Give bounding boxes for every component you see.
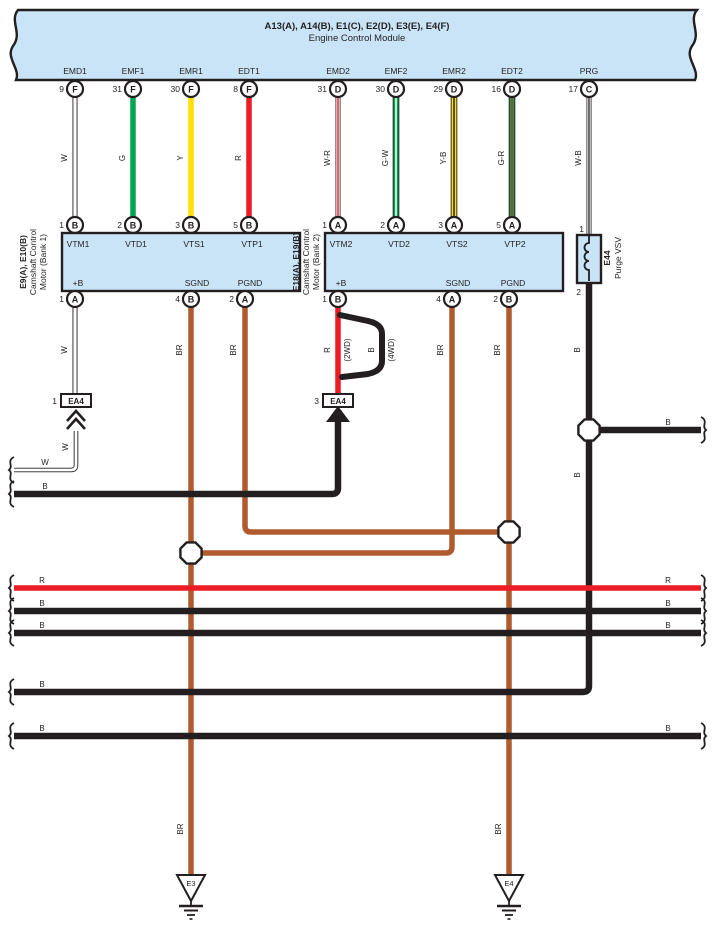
pin-connector-letter: B — [335, 295, 342, 305]
ecm-pin-emd1: 9 F — [59, 81, 83, 97]
connector-label: EA4 — [68, 397, 84, 406]
bank2-pgnd: PGND — [501, 278, 526, 288]
bank1-top-pin-3: 3 B — [175, 217, 199, 233]
label-4wd: (4WD) — [387, 338, 396, 361]
bank1-body — [62, 233, 300, 291]
bank1-top-pin-5: 5 B — [233, 217, 257, 233]
bank2-top-pin-2: 2 A — [380, 217, 404, 233]
wire-sgnd2-br — [200, 306, 452, 553]
ecm-pin-emf2: 30 D — [376, 81, 404, 97]
wire-label-y: Y — [176, 155, 185, 161]
bank1-bottom-pin-2: 2 A — [229, 291, 253, 307]
label-b-bus3-left: B — [39, 680, 44, 689]
bank1-bottom-pin-1: 1 A — [59, 291, 83, 307]
connector-number: 3 — [314, 396, 319, 406]
wire-ea4-3-continuation-b — [14, 414, 338, 494]
label-br-pgnd1: BR — [229, 344, 238, 355]
pin-number: 30 — [171, 84, 181, 94]
bank1-vtm1: VTM1 — [67, 239, 90, 249]
wire-label-gw: G-W — [381, 149, 390, 166]
pin-connector-letter: A — [451, 221, 458, 231]
bank1-vtp1: VTP1 — [241, 239, 263, 249]
pin-connector-letter: A — [393, 221, 400, 231]
bank2-desc1: Camshaft Control — [301, 229, 311, 295]
upper-wire-labels: W G Y R W-R G-W Y-B G-R W-B — [60, 149, 583, 166]
ecm-signal-prg: PRG — [580, 66, 598, 76]
bank1-vtd1: VTD1 — [125, 239, 147, 249]
bank2-top-pin-1: 1 A — [322, 217, 346, 233]
label-br-e3: BR — [176, 823, 185, 834]
label-b-bus2-right: B — [665, 621, 670, 630]
ecm-pin-emr2: 29 D — [434, 81, 462, 97]
wire-label-gr: G-R — [497, 150, 506, 165]
ground-e4: E4 — [495, 875, 523, 919]
ground-label: E4 — [504, 879, 513, 888]
brace-right-b5 — [701, 723, 706, 749]
label-w-left-exit: W — [41, 458, 49, 467]
label-b-bus2-left: B — [39, 621, 44, 630]
ecm-signal-emf2: EMF2 — [385, 66, 408, 76]
brace-right-r — [701, 575, 706, 601]
bank2-bottom-pin-4: 4 A — [436, 291, 460, 307]
bank1-code: E9(A), E10(B) — [18, 235, 28, 289]
label-r-bus-left: R — [39, 576, 45, 585]
vsv-pin-bottom: 2 — [576, 287, 581, 297]
splice-sgnd — [180, 542, 201, 563]
bank2-vtp2: VTP2 — [504, 239, 526, 249]
bank2-plusb: +B — [336, 278, 347, 288]
lower-wiring — [14, 283, 701, 876]
wire-label-r: R — [234, 155, 243, 161]
ecm: A13(A), A14(B), E1(C), E2(D), E3(E), E4(… — [11, 10, 697, 97]
ecm-signal-emd2: EMD2 — [326, 66, 350, 76]
pin-number: 9 — [59, 84, 64, 94]
ecm-pin-emf1: 31 F — [113, 81, 141, 97]
pin-number: 1 — [322, 294, 327, 304]
pin-connector-letter: A — [335, 221, 342, 231]
pin-connector-letter: F — [130, 85, 136, 95]
pin-connector-letter: D — [509, 85, 516, 95]
brace-left-b4 — [9, 679, 14, 705]
pin-number: 31 — [318, 84, 328, 94]
bank1-top-pin-2: 2 B — [117, 217, 141, 233]
label-b-left-exit: B — [42, 482, 47, 491]
pin-number: 1 — [59, 220, 64, 230]
label-b-bus4-left: B — [39, 724, 44, 733]
pin-number: 17 — [569, 84, 579, 94]
pin-number: 30 — [376, 84, 386, 94]
pin-number: 31 — [113, 84, 123, 94]
pin-connector-letter: F — [188, 85, 194, 95]
bank1-desc1: Camshaft Control — [28, 229, 38, 295]
pin-number: 5 — [233, 220, 238, 230]
ecm-signal-emr1: EMR1 — [179, 66, 203, 76]
bank2-motor: 1 A 2 A 3 A 5 A VTM2 VTD2 VTS2 VTP2 +B S… — [291, 217, 563, 307]
connector-ea4-3: 3 EA4 — [314, 394, 353, 422]
bank2-top-pin-5: 5 A — [496, 217, 520, 233]
brace-left-w — [9, 457, 14, 483]
label-br-sgnd1: BR — [175, 344, 184, 355]
bank2-desc2: Motor (Bank 2) — [311, 234, 321, 290]
bank2-vtm2: VTM2 — [330, 239, 353, 249]
chevron-arrow-icon — [67, 419, 85, 429]
pin-connector-letter: B — [246, 221, 253, 231]
pin-connector-letter: D — [335, 85, 342, 95]
bank2-code: E18(A), E19(B) — [291, 233, 301, 292]
label-w-ea4-lower: W — [61, 443, 70, 451]
label-br-e4: BR — [494, 823, 503, 834]
ground-label: E3 — [186, 879, 195, 888]
vsv-pin-top: 1 — [579, 224, 584, 234]
pin-number: 8 — [233, 84, 238, 94]
label-r-bus-right: R — [665, 576, 671, 585]
bank2-top-pin-3: 3 A — [438, 217, 462, 233]
pin-connector-letter: D — [451, 85, 458, 95]
pin-connector-letter: F — [246, 85, 252, 95]
connector-number: 1 — [52, 396, 57, 406]
bank2-sgnd: SGND — [446, 278, 471, 288]
pin-number: 2 — [380, 220, 385, 230]
pin-number: 3 — [175, 220, 180, 230]
splice-black — [578, 419, 599, 440]
ecm-pin-emd2: 31 D — [318, 81, 346, 97]
bank2-vts2: VTS2 — [446, 239, 468, 249]
bank1-sgnd: SGND — [185, 278, 210, 288]
brace-left-b1 — [9, 481, 14, 507]
label-br-pgnd2: BR — [493, 344, 502, 355]
label-b-4wd-wire: B — [367, 347, 376, 352]
bank1-pgnd: PGND — [238, 278, 263, 288]
continuation-braces — [9, 417, 706, 749]
brace-left-b5 — [9, 723, 14, 749]
label-b-bus4-right: B — [665, 724, 670, 733]
pin-number: 3 — [438, 220, 443, 230]
pin-connector-letter: F — [72, 85, 78, 95]
bank1-bottom-pin-4: 4 B — [175, 291, 199, 307]
label-b-vsv-upper: B — [573, 347, 582, 352]
ecm-subtitle: Engine Control Module — [309, 33, 406, 44]
bank1-top-pin-1: 1 B — [59, 217, 83, 233]
pin-connector-letter: B — [188, 295, 195, 305]
ecm-pin-edt1: 8 F — [233, 81, 257, 97]
wire-label-wr: W-R — [323, 150, 332, 166]
pin-connector-letter: D — [393, 85, 400, 95]
ecm-signal-emd1: EMD1 — [63, 66, 87, 76]
pin-connector-letter: B — [130, 221, 137, 231]
bank1-vts1: VTS1 — [183, 239, 205, 249]
pin-connector-letter: A — [242, 295, 249, 305]
label-r-plusb2: R — [323, 347, 332, 353]
wiring-diagram-page: W G Y R W-R G-W Y-B G-R W-B — [0, 0, 715, 931]
pin-number: 29 — [434, 84, 444, 94]
wiring-diagram: W G Y R W-R G-W Y-B G-R W-B — [0, 0, 715, 931]
label-w-plusb1: W — [60, 346, 69, 354]
wire-label-yb: Y-B — [439, 152, 448, 165]
pin-number: 1 — [59, 294, 64, 304]
ecm-pin-emr1: 30 F — [171, 81, 199, 97]
pin-number: 5 — [496, 220, 501, 230]
brace-right-branch — [701, 417, 706, 443]
bank2-vtd2: VTD2 — [388, 239, 410, 249]
bus-wires — [14, 588, 701, 736]
pin-connector-letter: B — [506, 295, 513, 305]
pin-number: 2 — [229, 294, 234, 304]
wire-pgnd1-br — [245, 306, 500, 532]
ecm-pin-prg: 17 C — [569, 81, 597, 97]
label-b-bus1-left: B — [39, 599, 44, 608]
label-b-bus1-right: B — [665, 599, 670, 608]
bank1-plusb: +B — [73, 278, 84, 288]
ecm-signal-edt2: EDT2 — [501, 66, 523, 76]
label-2wd: (2WD) — [343, 338, 352, 361]
pin-number: 1 — [322, 220, 327, 230]
bank1-desc2: Motor (Bank 1) — [38, 234, 48, 290]
ecm-output-wires — [75, 97, 589, 235]
pin-connector-letter: A — [449, 295, 456, 305]
pin-connector-letter: A — [72, 295, 79, 305]
wire-label-wb: W-B — [574, 150, 583, 165]
bank2-body — [325, 233, 563, 291]
label-b-vsv-lower: B — [573, 472, 582, 477]
brace-left-r — [9, 575, 14, 601]
connector-label: EA4 — [330, 397, 346, 406]
bank2-bottom-pin-1: 1 B — [322, 291, 346, 307]
pin-number: 2 — [493, 294, 498, 304]
purge-vsv: 1 2 E44 Purge VSV — [576, 224, 623, 297]
pin-number: 4 — [175, 294, 180, 304]
ecm-signal-emr2: EMR2 — [442, 66, 466, 76]
pin-connector-letter: B — [72, 221, 79, 231]
ground-e3: E3 — [177, 875, 205, 919]
pin-connector-letter: B — [188, 221, 195, 231]
vsv-code: E44 — [602, 250, 612, 265]
bank2-bottom-pin-2: 2 B — [493, 291, 517, 307]
pin-connector-letter: C — [586, 85, 593, 95]
wire-label-g: G — [118, 155, 127, 161]
ecm-signal-edt1: EDT1 — [238, 66, 260, 76]
label-br-sgnd2: BR — [436, 344, 445, 355]
splice-pgnd — [498, 521, 519, 542]
ecm-pin-edt2: 16 D — [492, 81, 520, 97]
solid-arrow-icon — [326, 406, 350, 422]
bank1-motor: 1 B 2 B 3 B 5 B VTM1 VTD1 VTS1 VTP1 +B S… — [18, 217, 300, 307]
ecm-title: A13(A), A14(B), E1(C), E2(D), E3(E), E4(… — [265, 21, 450, 32]
ecm-signal-emf1: EMF1 — [122, 66, 145, 76]
pin-number: 16 — [492, 84, 502, 94]
label-b-right-branch: B — [665, 418, 670, 427]
pin-number: 4 — [436, 294, 441, 304]
wire-label-w: W — [60, 154, 69, 162]
pin-connector-letter: A — [509, 221, 516, 231]
connector-ea4-1: 1 EA4 — [52, 394, 91, 429]
vsv-name: Purge VSV — [613, 237, 623, 279]
pin-number: 2 — [117, 220, 122, 230]
